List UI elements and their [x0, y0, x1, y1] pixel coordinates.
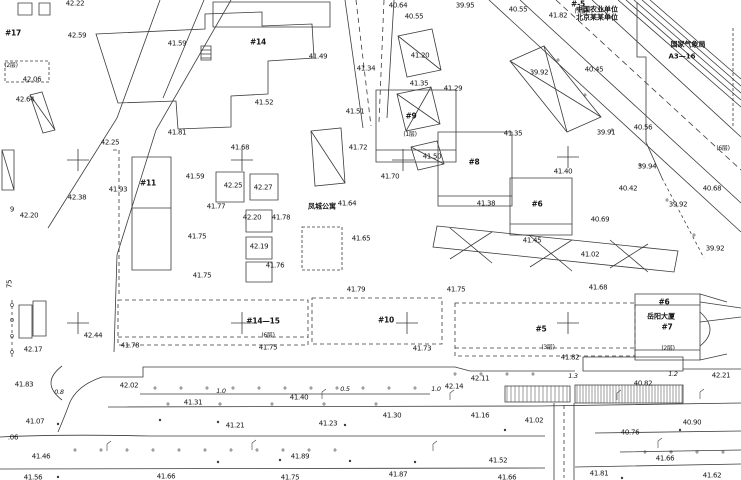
slope-value-label: 0.5 [340, 386, 349, 393]
spot-height-label: 41.50 [423, 154, 442, 161]
spot-height-label: 41.81 [168, 130, 187, 137]
rotated-label: 75 [7, 280, 14, 288]
spot-height-label: 41.76 [266, 263, 285, 270]
place-name-label: 国家气象局 [671, 42, 706, 49]
spot-height-label: 42.25 [101, 140, 120, 147]
survey-cross [557, 312, 579, 334]
spot-height-label: 41.64 [338, 201, 357, 208]
spot-height-label: 42.20 [243, 215, 262, 222]
spot-height-label: 41.23 [319, 421, 338, 428]
spot-height-label: 39.95 [456, 3, 475, 10]
spot-height-label: 41.82 [561, 355, 580, 362]
spot-height-label: 41.82 [549, 13, 568, 20]
spot-height-label: 41.75 [259, 345, 278, 352]
spot-height-label: 41.02 [581, 252, 600, 259]
road-south-lower [0, 431, 741, 469]
spot-height-label: 41.66 [656, 456, 675, 463]
building-number-label: #10 [378, 316, 394, 324]
spot-height-label: 42.21 [712, 373, 731, 380]
survey-cross [231, 149, 253, 171]
survey-cross [557, 146, 579, 168]
spot-height-label: 41.20 [411, 53, 430, 60]
survey-cross [392, 149, 414, 171]
slope-value-label: 1.0 [216, 388, 225, 395]
spot-height-label: 41.51 [346, 109, 365, 116]
spot-height-label: 40.55 [405, 14, 424, 21]
survey-map: 42.2242.5941.5942.0642.6440.6440.5539.95… [0, 0, 741, 480]
building-number-label: #14 [250, 38, 266, 46]
slope-value-label: 1.0 [431, 386, 440, 393]
spot-height-label: 40.45 [585, 67, 604, 74]
spot-height-label: 41.75 [193, 273, 212, 280]
building-number-label: #11 [140, 179, 156, 187]
place-name-label: A3—16 [668, 54, 695, 61]
spot-height-label: 41.83 [15, 382, 34, 389]
road-south-upper [51, 357, 741, 432]
spot-height-label: 41.93 [109, 187, 128, 194]
spot-height-label: 42.27 [254, 185, 273, 192]
spot-height-label: 42.38 [68, 195, 87, 202]
spot-height-label: 41.75 [447, 287, 466, 294]
spot-height-label: 41.75 [281, 475, 300, 480]
spot-height-label: 41.79 [347, 287, 366, 294]
floor-count-label: (2层) [661, 346, 674, 352]
spot-height-label: 41.66 [157, 474, 176, 480]
place-name-label: 岳阳大厦 [647, 314, 675, 321]
spot-height-label: 41.02 [525, 418, 544, 425]
spot-height-label: 40.90 [683, 420, 702, 427]
spot-height-label: 41.40 [290, 395, 309, 402]
spot-height-label: 41.68 [231, 145, 250, 152]
place-name-label: 北京某某单位 [576, 15, 618, 22]
spot-height-label: 41.46 [32, 454, 51, 461]
spot-height-label: 41.35 [504, 131, 523, 138]
spot-height-label: 41.21 [226, 423, 245, 430]
building-number-label: #5 [535, 325, 546, 333]
spot-height-label: 40.42 [619, 186, 638, 193]
spot-height-label: 41.34 [357, 66, 376, 73]
floor-count-label: (7层) [574, 9, 587, 15]
building-number-label: #14—15 [246, 317, 279, 325]
spot-height-label: .06 [8, 435, 18, 442]
road-vertical-south [554, 403, 574, 480]
spot-height-label: 41.16 [471, 413, 490, 420]
slope-value-label: 0.8 [54, 389, 63, 396]
spot-height-label: 41.89 [291, 454, 310, 461]
spot-height-label: 41.35 [410, 81, 429, 88]
spot-height-label: 39.92 [530, 70, 549, 77]
building-number-label: #6 [531, 200, 542, 208]
spot-height-label: 41.78 [272, 215, 291, 222]
spot-height-label: 39.92 [669, 202, 688, 209]
spot-height-label: 40.56 [634, 125, 653, 132]
building-number-label: #9 [405, 112, 416, 120]
spot-height-label: 41.70 [381, 174, 400, 181]
spot-height-label: 41.66 [498, 475, 517, 480]
spot-height-label: 40.76 [621, 430, 640, 437]
spot-height-label: 41.40 [554, 169, 573, 176]
floor-count-label: (1层) [403, 132, 416, 138]
building-number-label: #17 [5, 29, 21, 37]
building-number-label: #8 [468, 158, 479, 166]
floor-count-label: (3层) [541, 345, 554, 351]
spot-height-label: 40.68 [703, 186, 722, 193]
spot-height-label: 41.75 [188, 234, 207, 241]
spot-height-label: 41.59 [186, 174, 205, 181]
spot-height-label: 39.91 [597, 130, 616, 137]
spot-height-label: 41.62 [703, 473, 722, 480]
slope-value-label: 1.2 [668, 371, 677, 378]
spot-height-label: 42.11 [471, 376, 490, 383]
spot-height-label: 41.68 [589, 285, 608, 292]
floor-count-label: (6层) [261, 333, 274, 339]
spot-height-label: 41.52 [489, 458, 508, 465]
spot-height-label: 42.64 [16, 97, 35, 104]
spot-height-label: 41.78 [121, 343, 140, 350]
building-number-label: #6 [658, 298, 669, 306]
spot-height-label: 41.45 [523, 238, 542, 245]
buildings-outlines [2, 2, 741, 360]
spot-height-label: 41.07 [26, 419, 45, 426]
spot-height-label: 42.44 [84, 333, 103, 340]
spot-height-label: 41.52 [255, 100, 274, 107]
spot-height-label: 41.30 [383, 413, 402, 420]
slope-value-label: 1.3 [568, 373, 577, 380]
spot-height-label: 42.06 [23, 77, 42, 84]
spot-height-label: 41.81 [590, 471, 609, 478]
map-decorations [10, 58, 725, 479]
spot-height-label: 42.02 [120, 383, 139, 390]
place-name-label: 凤城公寓 [308, 204, 336, 211]
spot-height-label: 42.19 [250, 244, 269, 251]
survey-cross [396, 312, 418, 334]
spot-height-label: 39.94 [638, 164, 657, 171]
spot-height-label: 42.25 [224, 183, 243, 190]
spot-height-label: 42.17 [24, 347, 43, 354]
spot-height-label: 40.55 [509, 7, 528, 14]
spot-height-label: 40.82 [634, 381, 653, 388]
spot-height-label: 9 [10, 207, 14, 214]
spot-height-label: 42.14 [445, 384, 464, 391]
spot-height-label: 40.69 [591, 217, 610, 224]
spot-height-label: 40.64 [389, 3, 408, 10]
building-number-label: #7 [661, 323, 672, 331]
spot-height-label: 42.20 [20, 213, 39, 220]
spot-height-label: 42.22 [66, 1, 85, 8]
floor-count-label: (6层) [716, 146, 729, 152]
spot-height-label: 41.72 [349, 145, 368, 152]
spot-height-label: 41.29 [444, 86, 463, 93]
spot-height-label: 41.59 [168, 41, 187, 48]
spot-height-label: 41.38 [477, 201, 496, 208]
spot-height-label: 41.87 [389, 472, 408, 479]
floor-count-label: (2层) [4, 63, 17, 69]
spot-height-label: 41.73 [413, 346, 432, 353]
spot-height-label: 41.77 [207, 204, 226, 211]
spot-height-label: 41.49 [309, 54, 328, 61]
spot-height-label: 39.92 [706, 246, 725, 253]
spot-height-label: 41.56 [24, 475, 43, 480]
spot-height-label: 41.65 [352, 236, 371, 243]
spot-height-label: 42.59 [68, 33, 87, 40]
spot-height-label: 41.31 [184, 400, 203, 407]
